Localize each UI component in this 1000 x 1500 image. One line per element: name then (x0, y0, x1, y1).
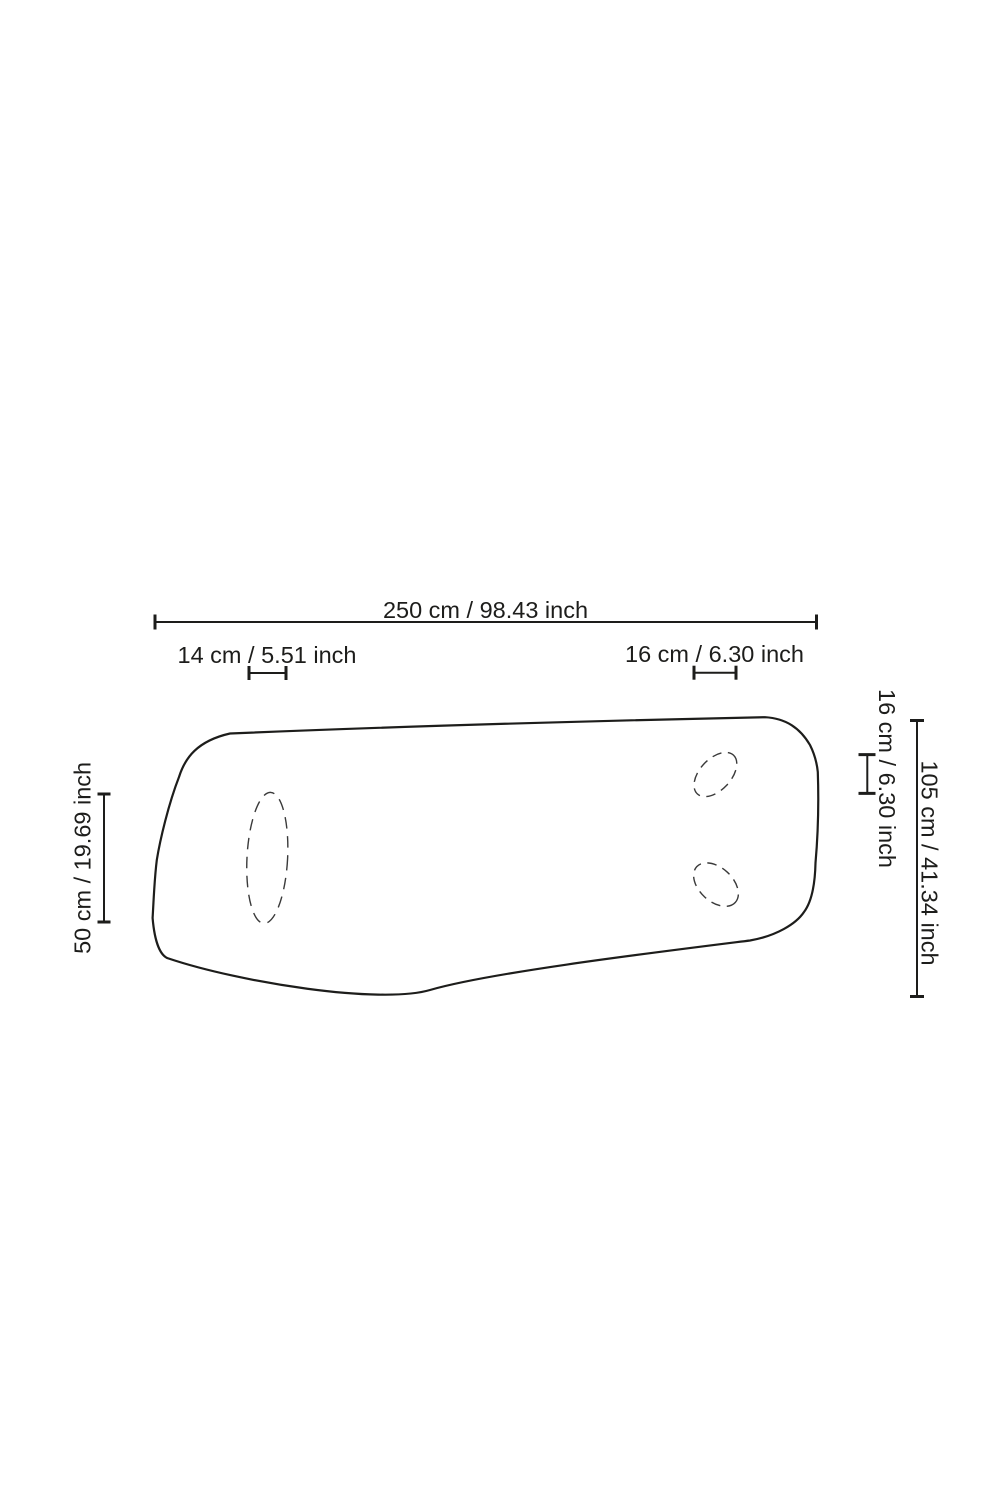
svg-text:16 cm / 6.30 inch: 16 cm / 6.30 inch (874, 689, 900, 868)
svg-text:14 cm / 5.51 inch: 14 cm / 5.51 inch (178, 642, 357, 668)
svg-text:250 cm / 98.43 inch: 250 cm / 98.43 inch (383, 597, 588, 623)
svg-text:105 cm / 41.34 inch: 105 cm / 41.34 inch (917, 760, 943, 965)
svg-text:50 cm / 19.69 inch: 50 cm / 19.69 inch (69, 762, 95, 954)
svg-text:16 cm / 6.30 inch: 16 cm / 6.30 inch (625, 641, 804, 667)
